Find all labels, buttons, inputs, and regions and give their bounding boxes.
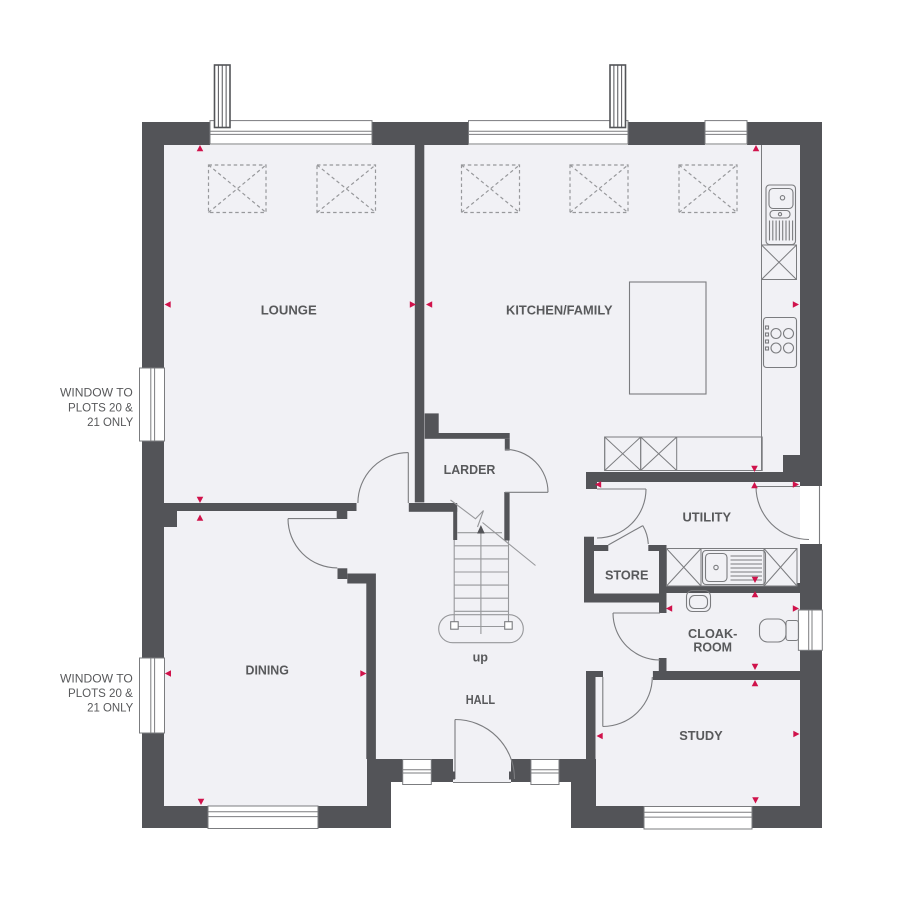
svg-text:WINDOW TO: WINDOW TO: [60, 671, 133, 685]
svg-text:ROOM: ROOM: [693, 639, 732, 654]
svg-text:21 ONLY: 21 ONLY: [87, 701, 133, 715]
svg-text:LARDER: LARDER: [444, 462, 496, 477]
svg-text:HALL: HALL: [466, 692, 495, 707]
svg-text:KITCHEN/FAMILY: KITCHEN/FAMILY: [506, 303, 613, 318]
svg-text:LOUNGE: LOUNGE: [261, 303, 317, 318]
svg-text:WINDOW TO: WINDOW TO: [60, 386, 133, 400]
svg-text:PLOTS 20 &: PLOTS 20 &: [68, 400, 133, 414]
svg-text:DINING: DINING: [246, 662, 289, 677]
svg-text:STUDY: STUDY: [679, 728, 723, 743]
svg-text:up: up: [473, 649, 488, 664]
svg-text:STORE: STORE: [605, 568, 649, 583]
svg-text:UTILITY: UTILITY: [683, 509, 732, 524]
svg-text:21 ONLY: 21 ONLY: [87, 415, 133, 429]
svg-text:PLOTS 20 &: PLOTS 20 &: [68, 686, 133, 700]
